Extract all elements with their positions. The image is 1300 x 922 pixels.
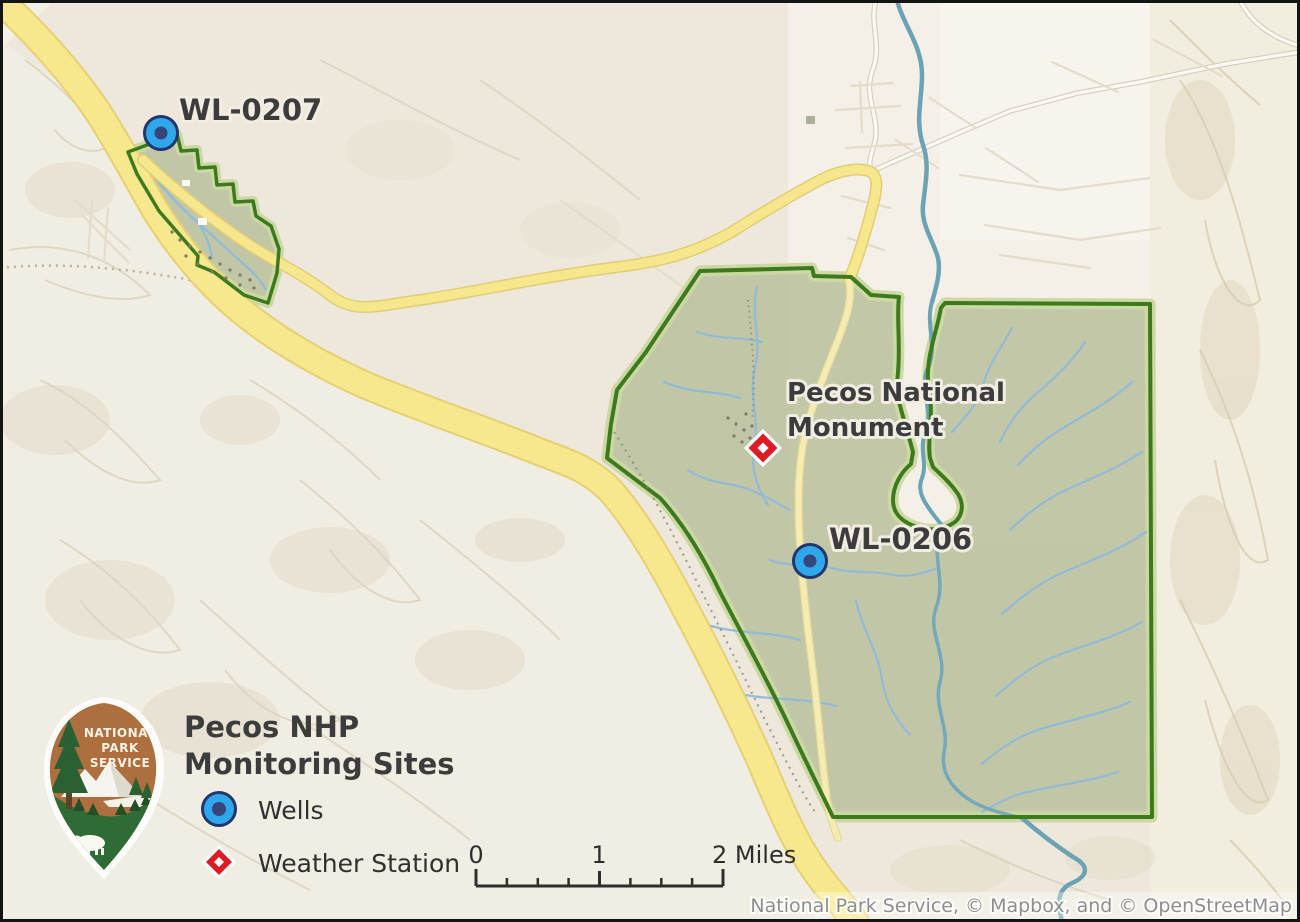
legend-item-wells: Wells bbox=[203, 793, 324, 826]
well-marker-wl0206 bbox=[794, 545, 827, 578]
legend-item-wells-label: Wells bbox=[258, 796, 324, 825]
legend-title-line2: Monitoring Sites bbox=[184, 747, 455, 781]
map-frame: WL-0207 WL-0206 Pecos National Monument bbox=[0, 0, 1300, 922]
well-circle-icon bbox=[203, 793, 236, 826]
scale-label-0: 0 bbox=[468, 841, 483, 869]
attribution-text: National Park Service, © Mapbox, and © O… bbox=[750, 895, 1292, 917]
legend-title-line1: Pecos NHP bbox=[184, 710, 359, 744]
label-monument-line2: Monument bbox=[787, 413, 943, 443]
logo-text-line2: PARK bbox=[101, 741, 139, 755]
label-monument-line1: Pecos National bbox=[787, 378, 1005, 408]
legend-item-weather-label: Weather Station bbox=[258, 849, 460, 878]
scale-label-1: 1 bbox=[591, 841, 606, 869]
well-marker-wl0207 bbox=[145, 117, 178, 150]
label-wl0207: WL-0207 bbox=[179, 93, 322, 127]
logo-text-line3: SERVICE bbox=[90, 756, 150, 770]
label-wl0206: WL-0206 bbox=[829, 522, 972, 556]
map-canvas[interactable]: WL-0207 WL-0206 Pecos National Monument bbox=[0, 0, 1300, 922]
scale-label-2miles: 2 Miles bbox=[712, 841, 796, 869]
